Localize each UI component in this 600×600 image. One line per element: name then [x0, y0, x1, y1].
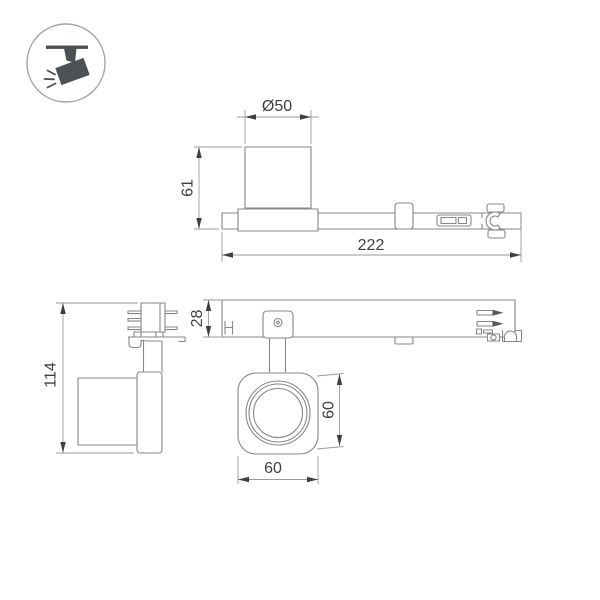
contact-pin [128, 327, 141, 330]
contact-pin [165, 327, 177, 330]
dim-label-61: 61 [180, 179, 197, 197]
contact-pin [128, 311, 141, 314]
plan-view [222, 147, 521, 238]
dim-label-diameter: Ø50 [262, 98, 292, 115]
dim-arrow [206, 326, 211, 337]
contact-blade [477, 311, 493, 316]
contact-block [477, 329, 482, 334]
dim-label-60-width: 60 [264, 460, 282, 477]
screw [491, 335, 496, 340]
dim-arrow [510, 252, 521, 257]
contact-pin [165, 311, 177, 314]
slider-knob [459, 218, 467, 224]
bottom-notch [395, 337, 413, 345]
dim-arrow [60, 442, 65, 453]
dim-arrow [60, 303, 65, 314]
latch-tab-bottom [488, 230, 505, 238]
luminaire-dimension-drawing: Ø50 61 222 [0, 0, 600, 600]
dim-label-114: 114 [43, 362, 60, 388]
dim-arrow [206, 300, 211, 311]
latch-step [179, 337, 186, 342]
power-box [395, 203, 413, 229]
adapter-foot [156, 332, 163, 337]
corner-logo [27, 24, 105, 102]
dim-head-width-60: 60 [238, 456, 318, 484]
technical-drawing-page: Ø50 61 222 [0, 0, 600, 600]
dim-head-height-60: 60 [317, 374, 344, 450]
dim-track-height-28: 28 [189, 300, 221, 337]
dim-arrow [307, 477, 318, 482]
elevation-view [222, 300, 522, 454]
dim-arrow [196, 218, 201, 229]
dim-label-60-height: 60 [321, 401, 338, 419]
lamp-cylinder-top [245, 147, 311, 208]
screw-center [277, 321, 280, 324]
dim-arrow [196, 147, 201, 158]
latch-tab-top [487, 204, 504, 212]
dim-arrow [337, 374, 342, 385]
head-back-plate [137, 372, 162, 453]
slider-knob [441, 218, 456, 224]
contact-block [484, 330, 493, 333]
lamp-bracket [238, 209, 318, 231]
latch-arch [505, 331, 517, 342]
contact-blade [477, 322, 493, 327]
adapter-foot [134, 332, 141, 337]
adapter-column [141, 303, 165, 332]
dim-label-28: 28 [189, 310, 206, 328]
logo-circle [27, 24, 105, 102]
dim-label-222: 222 [358, 237, 385, 254]
latch-hook [129, 337, 145, 348]
dim-diameter-50: Ø50 [237, 98, 319, 144]
contact-pin [128, 319, 141, 322]
head-body-side [78, 378, 137, 445]
dim-arrow [238, 477, 249, 482]
dim-arrow [337, 435, 342, 446]
track-bar-glyph [46, 46, 88, 49]
dim-arrow [222, 252, 233, 257]
dim-arrow [245, 114, 256, 119]
dim-arrow [300, 114, 311, 119]
side-view [78, 303, 185, 453]
